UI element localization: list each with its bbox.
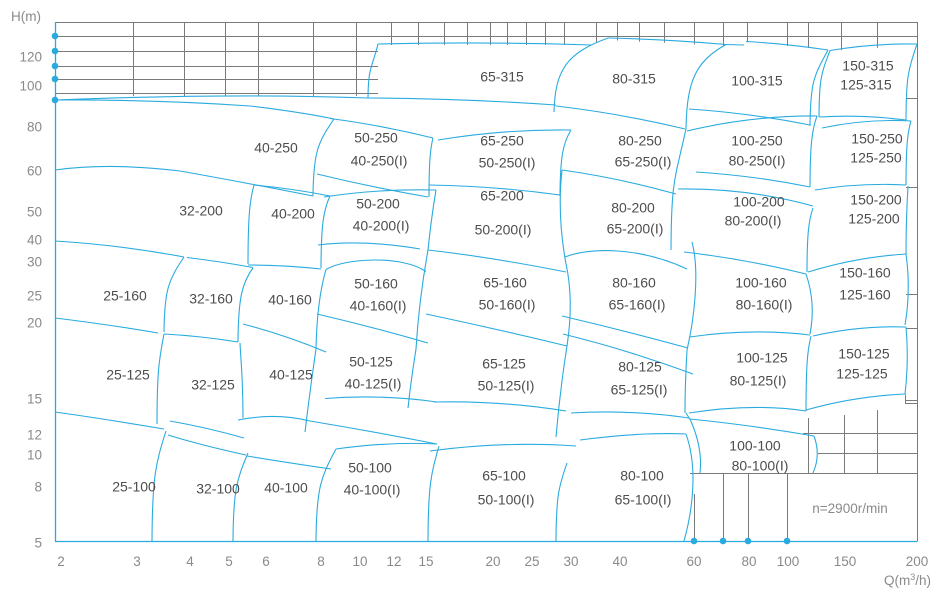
svg-text:100-160: 100-160 bbox=[735, 275, 787, 291]
svg-text:50-250: 50-250 bbox=[354, 130, 398, 146]
svg-text:100-200: 100-200 bbox=[733, 194, 785, 210]
svg-text:80-250: 80-250 bbox=[618, 133, 662, 149]
svg-text:80-100: 80-100 bbox=[620, 468, 664, 484]
svg-text:100-250: 100-250 bbox=[731, 133, 783, 149]
svg-text:5: 5 bbox=[34, 536, 42, 551]
svg-text:32-160: 32-160 bbox=[189, 291, 233, 307]
svg-text:100: 100 bbox=[777, 554, 800, 569]
svg-text:8: 8 bbox=[34, 480, 42, 495]
svg-text:150-315: 150-315 bbox=[842, 58, 894, 74]
svg-text:40-200: 40-200 bbox=[271, 206, 315, 222]
svg-text:80-200: 80-200 bbox=[611, 200, 655, 216]
svg-text:32-125: 32-125 bbox=[191, 377, 235, 393]
svg-text:25-100: 25-100 bbox=[112, 479, 156, 495]
svg-text:65-100: 65-100 bbox=[482, 468, 526, 484]
svg-text:50-200(I): 50-200(I) bbox=[475, 222, 532, 238]
svg-text:n=2900r/min: n=2900r/min bbox=[812, 501, 887, 516]
svg-text:15: 15 bbox=[418, 554, 433, 569]
svg-text:65-125(I): 65-125(I) bbox=[611, 382, 668, 398]
svg-text:50-100: 50-100 bbox=[348, 460, 392, 476]
svg-text:150-250: 150-250 bbox=[851, 131, 903, 147]
svg-text:80-160(I): 80-160(I) bbox=[736, 297, 793, 313]
svg-text:60: 60 bbox=[686, 554, 701, 569]
svg-text:50-100(I): 50-100(I) bbox=[478, 492, 535, 508]
svg-text:4: 4 bbox=[186, 554, 194, 569]
svg-text:32-200: 32-200 bbox=[179, 203, 223, 219]
svg-text:25-125: 25-125 bbox=[106, 367, 150, 383]
svg-text:25: 25 bbox=[27, 289, 42, 304]
svg-text:125-125: 125-125 bbox=[836, 366, 888, 382]
svg-text:40-200(I): 40-200(I) bbox=[353, 218, 410, 234]
svg-text:200: 200 bbox=[906, 554, 929, 569]
svg-text:150: 150 bbox=[834, 554, 857, 569]
svg-text:40-250(I): 40-250(I) bbox=[351, 153, 408, 169]
svg-text:50-125(I): 50-125(I) bbox=[478, 378, 535, 394]
svg-text:40-160: 40-160 bbox=[268, 292, 312, 308]
svg-text:15: 15 bbox=[27, 392, 42, 407]
svg-text:125-315: 125-315 bbox=[840, 77, 892, 93]
svg-text:40-100(I): 40-100(I) bbox=[344, 482, 401, 498]
svg-text:100-315: 100-315 bbox=[731, 73, 783, 89]
svg-text:50-160: 50-160 bbox=[354, 276, 398, 292]
svg-text:80-200(I): 80-200(I) bbox=[725, 213, 782, 229]
svg-text:65-200(I): 65-200(I) bbox=[607, 221, 664, 237]
svg-text:25-160: 25-160 bbox=[103, 288, 147, 304]
svg-text:100-100: 100-100 bbox=[729, 438, 781, 454]
svg-text:80-100(I): 80-100(I) bbox=[732, 458, 789, 474]
svg-text:125-200: 125-200 bbox=[848, 211, 900, 227]
svg-text:40-125: 40-125 bbox=[269, 367, 313, 383]
svg-text:65-100(I): 65-100(I) bbox=[615, 492, 672, 508]
svg-text:40: 40 bbox=[612, 554, 627, 569]
svg-text:5: 5 bbox=[225, 554, 233, 569]
svg-text:3: 3 bbox=[133, 554, 141, 569]
svg-text:150-125: 150-125 bbox=[838, 346, 890, 362]
svg-text:65-200: 65-200 bbox=[480, 188, 524, 204]
svg-text:150-160: 150-160 bbox=[839, 265, 891, 281]
svg-text:100-125: 100-125 bbox=[736, 350, 788, 366]
svg-text:65-160: 65-160 bbox=[483, 275, 527, 291]
svg-text:2: 2 bbox=[57, 554, 65, 569]
svg-text:60: 60 bbox=[27, 164, 42, 179]
svg-text:40-100: 40-100 bbox=[264, 480, 308, 496]
svg-text:12: 12 bbox=[386, 554, 401, 569]
svg-text:50-200: 50-200 bbox=[356, 196, 400, 212]
svg-text:10: 10 bbox=[352, 554, 367, 569]
svg-text:10: 10 bbox=[27, 448, 42, 463]
svg-text:50-125: 50-125 bbox=[349, 354, 393, 370]
svg-text:50-250(I): 50-250(I) bbox=[479, 155, 536, 171]
svg-text:40: 40 bbox=[27, 233, 42, 248]
svg-text:20: 20 bbox=[27, 316, 42, 331]
svg-text:65-125: 65-125 bbox=[482, 356, 526, 372]
svg-text:80-125: 80-125 bbox=[618, 359, 662, 375]
svg-text:50-160(I): 50-160(I) bbox=[479, 297, 536, 313]
svg-text:80: 80 bbox=[741, 554, 756, 569]
svg-text:125-160: 125-160 bbox=[839, 287, 891, 303]
svg-text:40-125(I): 40-125(I) bbox=[345, 376, 402, 392]
svg-text:30: 30 bbox=[27, 255, 42, 270]
svg-text:125-250: 125-250 bbox=[850, 150, 902, 166]
svg-text:65-250(I): 65-250(I) bbox=[615, 154, 672, 170]
svg-text:30: 30 bbox=[563, 554, 578, 569]
svg-text:150-200: 150-200 bbox=[850, 192, 902, 208]
svg-text:80-250(I): 80-250(I) bbox=[729, 153, 786, 169]
svg-text:Q(m3/h): Q(m3/h) bbox=[884, 572, 931, 588]
svg-text:65-315: 65-315 bbox=[480, 69, 524, 85]
svg-text:25: 25 bbox=[524, 554, 539, 569]
svg-text:12: 12 bbox=[27, 428, 42, 443]
svg-text:50: 50 bbox=[27, 205, 42, 220]
svg-text:120: 120 bbox=[19, 50, 42, 65]
svg-text:80-125(I): 80-125(I) bbox=[730, 373, 787, 389]
svg-text:32-100: 32-100 bbox=[196, 481, 240, 497]
svg-text:40-160(I): 40-160(I) bbox=[350, 298, 407, 314]
svg-text:65-160(I): 65-160(I) bbox=[609, 297, 666, 313]
svg-text:20: 20 bbox=[485, 554, 500, 569]
svg-text:H(m): H(m) bbox=[11, 9, 41, 24]
svg-text:40-250: 40-250 bbox=[254, 140, 298, 156]
svg-text:8: 8 bbox=[317, 554, 325, 569]
svg-text:6: 6 bbox=[262, 554, 270, 569]
svg-text:100: 100 bbox=[19, 79, 42, 94]
svg-text:65-250: 65-250 bbox=[480, 133, 524, 149]
svg-text:80-160: 80-160 bbox=[612, 275, 656, 291]
svg-text:80-315: 80-315 bbox=[612, 71, 656, 87]
svg-text:80: 80 bbox=[27, 120, 42, 135]
